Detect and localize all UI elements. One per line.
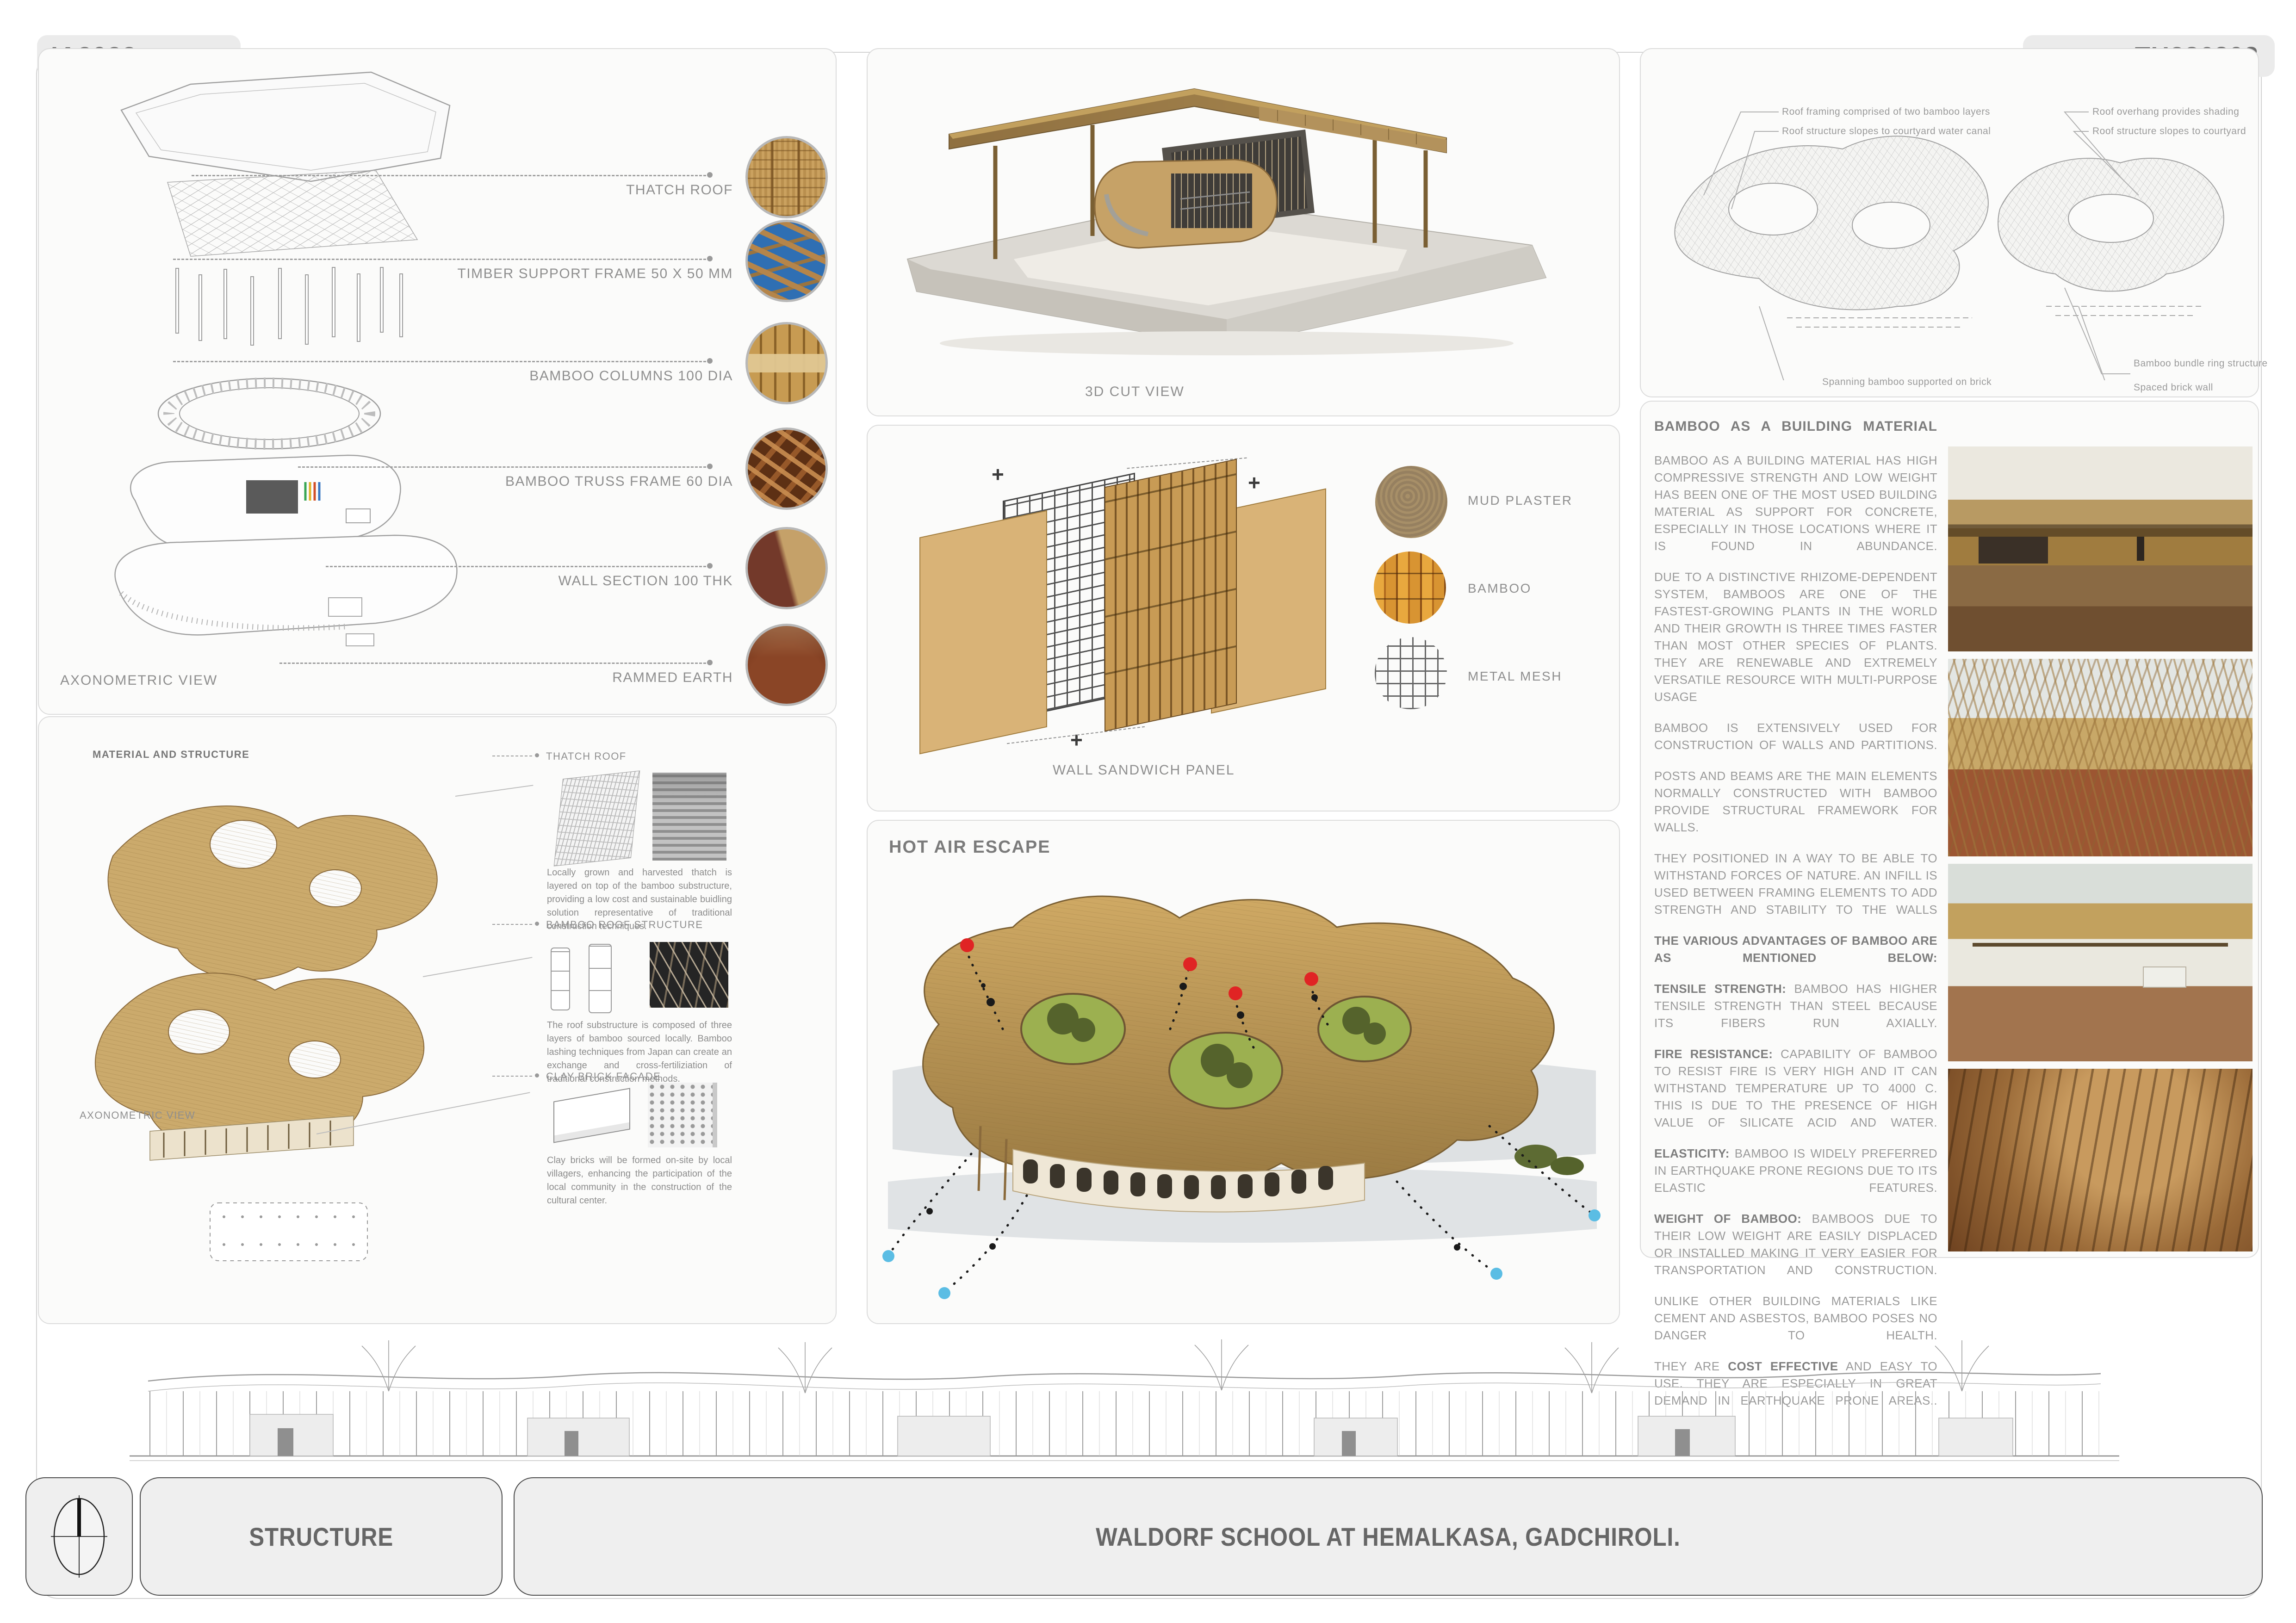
leader-line-thatch-roof	[192, 175, 706, 176]
cool-air-dot-blue	[1589, 1209, 1601, 1221]
bamboo-lashing-photo	[650, 942, 728, 1008]
hot-air-escape-panel: HOT AIR ESCAPE	[867, 820, 1620, 1324]
interior-bamboo-roof-photo	[1948, 1069, 2253, 1251]
annotation-slopes-courtyard: Roof structure slopes to courtyard	[2092, 126, 2246, 137]
assembly-marker: +	[1070, 727, 1083, 752]
clay-brick-drawing	[553, 1088, 630, 1143]
assembly-marker: +	[992, 462, 1004, 487]
roof-gridshell-panel: Roof framing comprised of two bamboo lay…	[1640, 48, 2259, 397]
roof-gridshell-drawing	[1648, 56, 2250, 380]
school-exterior-photo	[1948, 446, 2253, 651]
axonometric-view-caption-2: AXONOMETRIC VIEW	[80, 1109, 195, 1121]
doorway	[1979, 537, 2048, 564]
annotation-bamboo-bundle-ring: Bamboo bundle ring structure	[2134, 358, 2268, 369]
gridshell-construction-photo	[1948, 659, 2253, 856]
metal-mesh-label: METAL MESH	[1468, 669, 1562, 684]
cut-view-drawing	[875, 60, 1611, 365]
cut-view-caption: 3D CUT VIEW	[1085, 384, 1185, 400]
exploded-label-bamboo-truss: BAMBOO TRUSS FRAME 60 DIA	[455, 474, 733, 489]
clay-brick-paragraph: Clay bricks will be formed on-site by lo…	[547, 1154, 732, 1208]
material-item-clay-brick-facade: CLAY BRICK FACADE	[546, 1071, 661, 1083]
exploded-label-wall-section: WALL SECTION 100 THK	[455, 573, 733, 589]
leader-line-wall-section	[326, 566, 706, 567]
north-compass-icon	[49, 1493, 109, 1580]
thatch-field-photo	[652, 773, 726, 861]
bamboo-paragraph-elasticity: ELASTICITY: BAMBOO IS WIDELY PREFERRED I…	[1654, 1145, 1937, 1196]
bamboo-paragraph-advantages: THE VARIOUS ADVANTAGES OF BAMBOO ARE AS …	[1654, 932, 1937, 966]
annotation-overhang-shading: Roof overhang provides shading	[2092, 106, 2239, 118]
timber-frame-photo	[745, 220, 828, 302]
bamboo-paragraph: DUE TO A DISTINCTIVE RHIZOME-DEPENDENT S…	[1654, 569, 1937, 706]
thatch-photo	[745, 136, 828, 218]
theme-box: STRUCTURE	[140, 1477, 503, 1596]
cow-figure	[2143, 966, 2186, 988]
cool-air-dot-blue	[938, 1287, 950, 1299]
hot-air-dot-red	[1183, 957, 1197, 971]
leader-line-bamboo-truss	[298, 466, 706, 468]
annotation-spaced-brick-wall: Spaced brick wall	[2134, 382, 2213, 393]
bamboo-truss-photo	[745, 427, 828, 510]
leader-dash	[492, 1076, 532, 1077]
bamboo-column-bundle-drawing	[589, 944, 612, 1013]
leader-dot	[707, 563, 713, 569]
roof-edge-line	[1973, 943, 2228, 947]
material-item-bamboo-roof-structure: BAMBOO ROOF STRUCTURE	[546, 919, 703, 931]
elevation-drawing	[111, 1326, 2138, 1474]
exploded-label-thatch-roof: THATCH ROOF	[455, 182, 733, 198]
bamboo-roof-building-photo	[1948, 864, 2253, 1061]
material-structure-panel: MATERIAL AND STRUCTURE	[38, 716, 837, 1324]
leader-dot	[707, 358, 713, 364]
mud-plaster-layer-front	[919, 510, 1047, 755]
exploded-axonometric-drawing	[52, 66, 496, 681]
mud-plaster-label: MUD PLASTER	[1468, 493, 1573, 508]
wall-section-photo	[745, 527, 828, 609]
exploded-label-rammed-earth: RAMMED EARTH	[455, 670, 733, 686]
annotation-spanning-bamboo: Spanning bamboo supported on brick	[1822, 377, 1992, 388]
bamboo-swatch	[1374, 551, 1446, 624]
theme-label: STRUCTURE	[249, 1522, 393, 1552]
leader-dot	[535, 1073, 539, 1078]
bamboo-paragraph: THEY POSITIONED IN A WAY TO BE ABLE TO W…	[1654, 850, 1937, 918]
bamboo-slat-layer	[1105, 459, 1237, 732]
leader-dot	[707, 660, 713, 665]
north-compass-box	[25, 1477, 133, 1596]
bamboo-paragraph-tensile: TENSILE STRENGTH: BAMBOO HAS HIGHER TENS…	[1654, 980, 1937, 1032]
wall-sandwich-caption: WALL SANDWICH PANEL	[1053, 762, 1235, 778]
bamboo-paragraph: BAMBOO AS A BUILDING MATERIAL HAS HIGH C…	[1654, 452, 1937, 555]
exploded-label-bamboo-columns: BAMBOO COLUMNS 100 DIA	[455, 368, 733, 384]
annotation-roof-framing: Roof framing comprised of two bamboo lay…	[1782, 106, 1990, 118]
perforated-brick-wall-drawing	[648, 1083, 717, 1147]
hot-air-dot-red	[1304, 972, 1318, 986]
material-structure-heading: MATERIAL AND STRUCTURE	[93, 749, 249, 761]
assembly-marker: +	[1248, 470, 1260, 495]
leader-line-rammed-earth	[279, 663, 706, 664]
leader-dot	[707, 464, 713, 469]
hot-air-escape-rendering	[874, 830, 1611, 1316]
bamboo-paragraph-fire: FIRE RESISTANCE: CAPABILITY OF BAMBOO TO…	[1654, 1046, 1937, 1131]
cut-view-panel: 3D CUT VIEW	[867, 48, 1620, 416]
annotation-slopes-water-canal: Roof structure slopes to courtyard water…	[1782, 126, 1991, 137]
bamboo-heading: BAMBOO AS A BUILDING MATERIAL	[1654, 419, 1937, 434]
leader-dot	[535, 922, 539, 926]
person-figure	[2137, 537, 2144, 561]
leader-dot	[535, 753, 539, 757]
bamboo-columns-photo	[745, 322, 828, 404]
bamboo-label: BAMBOO	[1468, 581, 1532, 596]
leader-dot	[707, 256, 713, 261]
presentation-sheet: IA2022 TU286303	[0, 0, 2296, 1623]
bamboo-text-column: BAMBOO AS A BUILDING MATERIAL BAMBOO AS …	[1654, 419, 1937, 1423]
leader-line-bamboo-columns	[173, 361, 706, 362]
thatch-panel-drawing	[554, 770, 640, 866]
project-title-label: WALDORF SCHOOL AT HEMALKASA, GADCHIROLI.	[1096, 1522, 1681, 1552]
leader-dash	[492, 924, 532, 925]
leader-dash	[492, 756, 532, 756]
mud-plaster-swatch	[1375, 466, 1447, 538]
leader-line-timber-frame	[173, 259, 706, 260]
rammed-earth-photo	[745, 624, 828, 706]
bamboo-paragraph: BAMBOO IS EXTENSIVELY USED FOR CONSTRUCT…	[1654, 719, 1937, 754]
cool-air-dot-blue	[1490, 1268, 1502, 1280]
leader-dot	[707, 172, 713, 178]
exploded-axonometric-panel: THATCH ROOF TIMBER SUPPORT FRAME 50 X 50…	[38, 48, 837, 715]
hot-air-dot-red	[960, 938, 974, 952]
bamboo-column-drawing	[551, 948, 570, 1010]
material-item-thatch-roof: THATCH ROOF	[546, 750, 627, 762]
bamboo-paragraph: POSTS AND BEAMS ARE THE MAIN ELEMENTS NO…	[1654, 768, 1937, 836]
project-title-box: WALDORF SCHOOL AT HEMALKASA, GADCHIROLI.	[514, 1477, 2263, 1596]
metal-mesh-swatch	[1375, 637, 1447, 709]
axonometric-view-caption: AXONOMETRIC VIEW	[60, 673, 217, 688]
wall-sandwich-panel: + + + MUD PLASTER BAMBOO METAL MESH WALL…	[867, 425, 1620, 811]
exploded-label-timber-frame: TIMBER SUPPORT FRAME 50 X 50 MM	[455, 266, 733, 282]
bamboo-paragraph-weight: WEIGHT OF BAMBOO: BAMBOOS DUE TO THEIR L…	[1654, 1210, 1937, 1279]
hot-air-dot-red	[1229, 986, 1242, 1000]
cool-air-dot-blue	[882, 1250, 894, 1262]
organic-roof-axonometric-drawing	[57, 773, 520, 1291]
